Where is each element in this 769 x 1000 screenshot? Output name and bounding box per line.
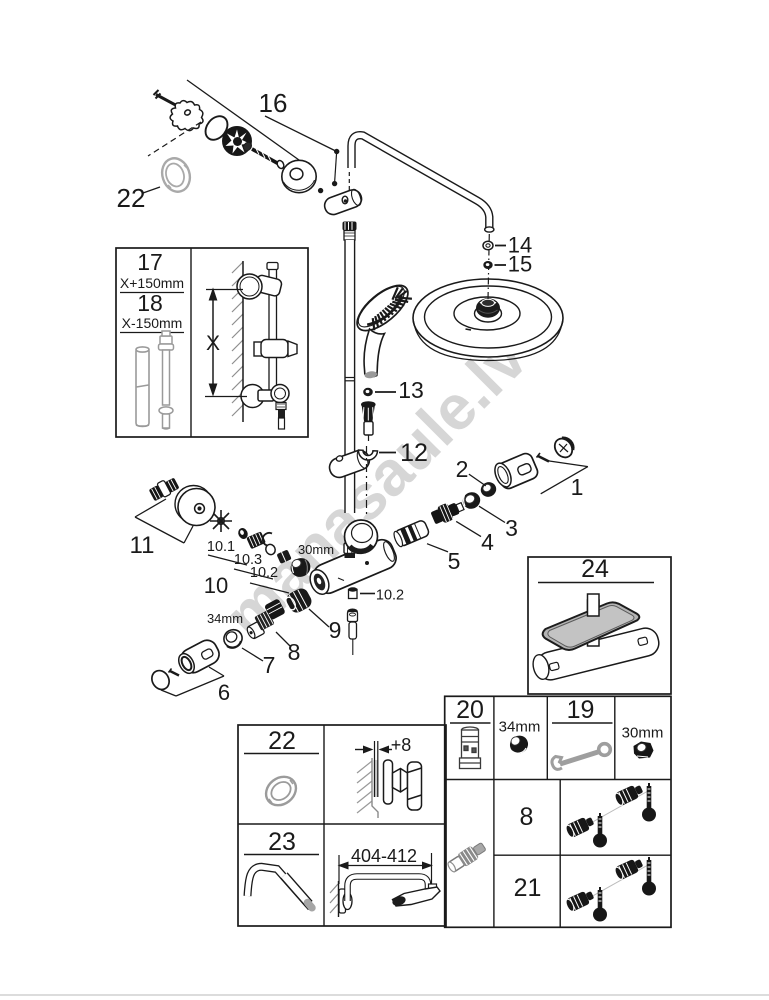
svg-text:15: 15	[508, 252, 532, 277]
svg-text:X+150mm: X+150mm	[120, 275, 184, 291]
svg-text:3: 3	[505, 515, 518, 541]
svg-text:5: 5	[448, 548, 461, 574]
svg-text:X: X	[206, 332, 220, 355]
svg-text:11: 11	[130, 532, 155, 559]
svg-text:30mm: 30mm	[298, 542, 334, 557]
svg-text:23: 23	[268, 828, 296, 856]
svg-text:12: 12	[400, 439, 428, 467]
svg-text:X-150mm: X-150mm	[122, 315, 183, 331]
svg-text:30mm: 30mm	[622, 725, 664, 742]
svg-text:+8: +8	[391, 735, 412, 755]
svg-text:8: 8	[520, 803, 534, 831]
svg-text:24: 24	[581, 555, 609, 583]
svg-text:9: 9	[329, 617, 342, 643]
svg-text:16: 16	[259, 88, 288, 118]
svg-text:2: 2	[456, 456, 469, 482]
svg-text:19: 19	[567, 696, 595, 724]
svg-text:404-412: 404-412	[351, 846, 417, 866]
svg-text:4: 4	[481, 529, 494, 555]
svg-text:6: 6	[218, 680, 230, 705]
svg-text:20: 20	[456, 696, 484, 724]
svg-text:10.1: 10.1	[207, 539, 235, 555]
svg-text:18: 18	[137, 290, 163, 316]
svg-text:34mm: 34mm	[207, 611, 243, 626]
svg-text:34mm: 34mm	[499, 719, 541, 736]
svg-text:8: 8	[288, 639, 301, 665]
svg-text:7: 7	[263, 652, 276, 678]
svg-text:13: 13	[398, 377, 424, 403]
svg-text:10.2: 10.2	[250, 565, 278, 581]
svg-text:22: 22	[268, 727, 296, 755]
svg-text:17: 17	[137, 249, 163, 275]
svg-text:21: 21	[514, 874, 542, 902]
svg-text:10: 10	[204, 573, 228, 598]
svg-text:1: 1	[571, 474, 584, 500]
svg-text:10.2: 10.2	[376, 588, 404, 604]
svg-text:22: 22	[117, 183, 146, 213]
